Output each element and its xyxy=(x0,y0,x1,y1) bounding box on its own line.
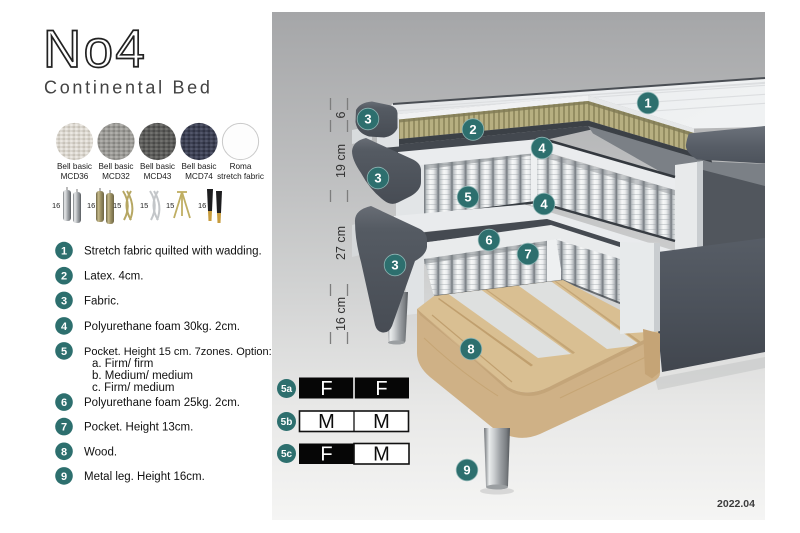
svg-text:Pocket. Height 15 cm. 7zones.: Pocket. Height 15 cm. 7zones. Option: xyxy=(84,346,272,358)
svg-text:3: 3 xyxy=(374,171,381,186)
svg-text:16: 16 xyxy=(52,201,60,210)
svg-text:Continental Bed: Continental Bed xyxy=(44,78,213,98)
svg-text:7: 7 xyxy=(61,422,67,434)
svg-text:Wood.: Wood. xyxy=(84,446,117,458)
svg-text:2: 2 xyxy=(61,271,67,283)
svg-text:MCD43: MCD43 xyxy=(144,172,172,181)
svg-text:M: M xyxy=(318,411,335,433)
svg-text:27 cm: 27 cm xyxy=(334,226,348,260)
svg-text:9: 9 xyxy=(463,463,470,478)
svg-text:Stretch fabric quilted with wa: Stretch fabric quilted with wadding. xyxy=(84,246,262,258)
svg-text:Polyurethane foam 25kg. 2cm.: Polyurethane foam 25kg. 2cm. xyxy=(84,397,240,409)
svg-text:9: 9 xyxy=(61,471,67,483)
svg-text:MCD36: MCD36 xyxy=(61,172,89,181)
svg-text:15: 15 xyxy=(113,201,121,210)
svg-text:3: 3 xyxy=(391,258,398,273)
svg-text:8: 8 xyxy=(61,446,67,458)
svg-text:No4: No4 xyxy=(43,20,147,79)
svg-text:15: 15 xyxy=(166,201,174,210)
svg-text:M: M xyxy=(373,444,390,466)
svg-text:Polyurethane foam 30kg. 2cm.: Polyurethane foam 30kg. 2cm. xyxy=(84,321,240,333)
svg-text:7: 7 xyxy=(524,247,531,262)
svg-text:1: 1 xyxy=(61,246,67,258)
svg-text:5: 5 xyxy=(61,346,67,358)
svg-text:6: 6 xyxy=(334,111,348,118)
svg-text:Metal leg. Height 16cm.: Metal leg. Height 16cm. xyxy=(84,471,205,483)
svg-text:4: 4 xyxy=(540,197,548,212)
svg-text:3: 3 xyxy=(61,295,67,307)
svg-text:Bell basic: Bell basic xyxy=(57,162,92,171)
svg-text:16: 16 xyxy=(87,201,95,210)
svg-text:16 cm: 16 cm xyxy=(334,297,348,331)
svg-text:F: F xyxy=(320,378,332,400)
svg-text:c. Firm/ medium: c. Firm/ medium xyxy=(92,382,174,394)
svg-text:6: 6 xyxy=(61,397,67,409)
svg-text:8: 8 xyxy=(467,342,474,357)
svg-text:6: 6 xyxy=(485,233,492,248)
svg-text:F: F xyxy=(320,444,332,466)
svg-text:Fabric.: Fabric. xyxy=(84,295,119,307)
svg-text:Bell basic: Bell basic xyxy=(140,162,175,171)
svg-text:1: 1 xyxy=(644,96,651,111)
svg-text:Bell basic: Bell basic xyxy=(181,162,216,171)
svg-text:b. Medium/ medium: b. Medium/ medium xyxy=(92,370,193,382)
svg-text:MCD74: MCD74 xyxy=(185,172,213,181)
svg-text:Latex. 4cm.: Latex. 4cm. xyxy=(84,271,143,283)
svg-text:4: 4 xyxy=(61,321,68,333)
svg-text:2022.04: 2022.04 xyxy=(717,498,755,510)
svg-text:Bell basic: Bell basic xyxy=(98,162,133,171)
svg-text:2: 2 xyxy=(469,122,476,137)
svg-text:F: F xyxy=(375,378,387,400)
svg-text:15: 15 xyxy=(140,201,148,210)
svg-text:5: 5 xyxy=(464,190,471,205)
svg-text:M: M xyxy=(373,411,390,433)
svg-text:16: 16 xyxy=(198,201,206,210)
svg-text:Roma: Roma xyxy=(230,162,252,171)
svg-text:Pocket. Height 13cm.: Pocket. Height 13cm. xyxy=(84,422,193,434)
svg-text:stretch fabric: stretch fabric xyxy=(217,172,264,181)
svg-text:5a: 5a xyxy=(281,384,293,395)
svg-text:5c: 5c xyxy=(281,449,293,460)
svg-text:MCD32: MCD32 xyxy=(102,172,130,181)
svg-text:3: 3 xyxy=(364,112,371,127)
svg-text:a. Firm/ firm: a. Firm/ firm xyxy=(92,358,153,370)
svg-text:4: 4 xyxy=(538,141,546,156)
svg-text:19 cm: 19 cm xyxy=(334,144,348,178)
svg-text:5b: 5b xyxy=(281,417,293,428)
